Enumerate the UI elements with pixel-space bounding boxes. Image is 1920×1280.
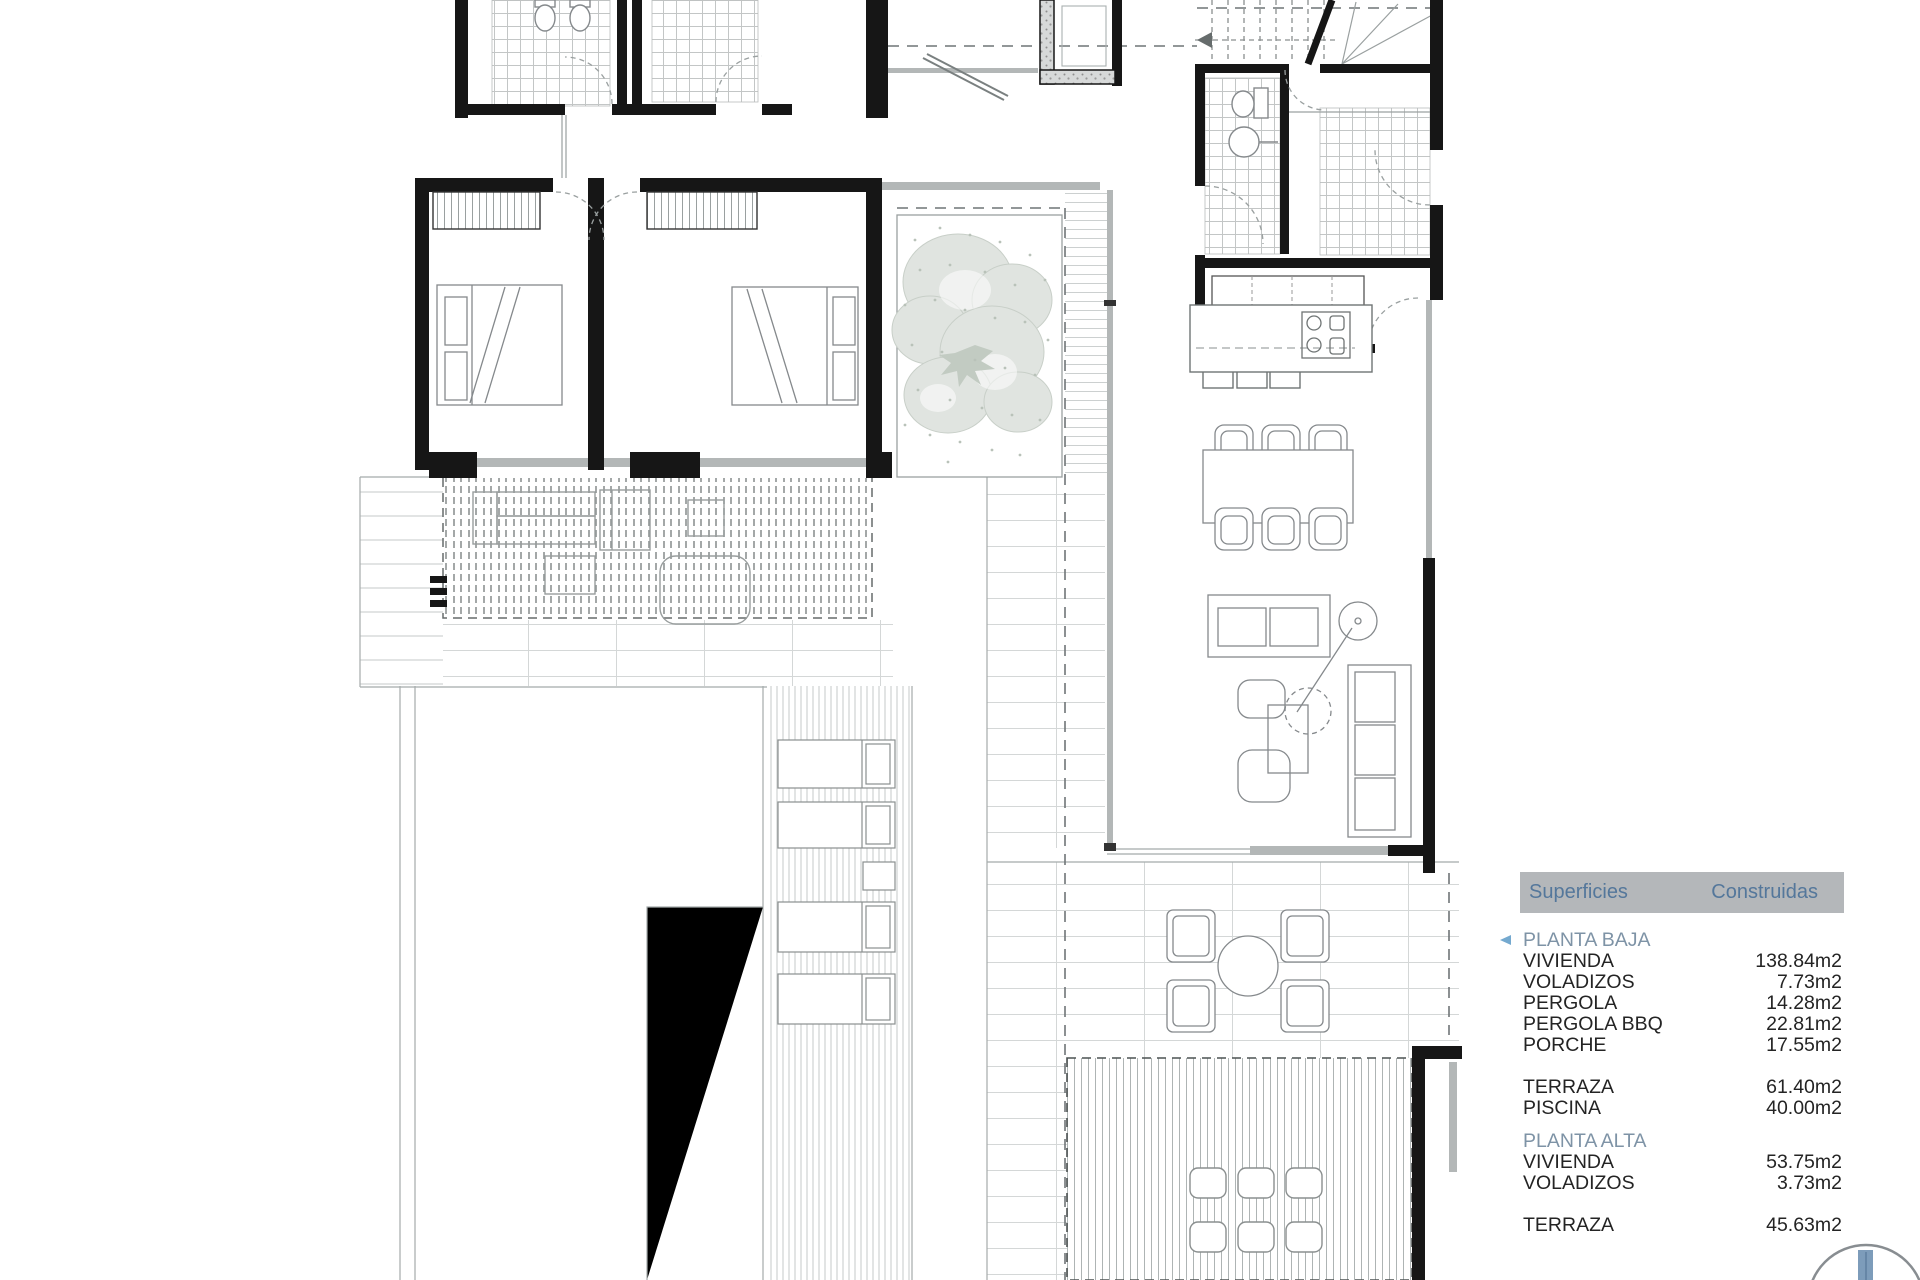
surface-table-header: Superficies Construidas [1520,872,1844,913]
east-terrace-grid [987,477,1105,848]
patio-north-glass [873,182,1100,190]
table-row: PORCHE17.55m2 [1520,1035,1844,1056]
table-row-planta-baja: PLANTA BAJA [1520,930,1844,951]
table-row: PISCINA40.00m2 [1520,1098,1844,1119]
triangle-left-icon [1500,935,1511,945]
round-table [1218,936,1278,996]
hall-partition-line [562,112,1430,178]
window-tick-marks [430,576,447,607]
bathroom-2-floor [652,0,758,102]
east-glass-wall [1426,300,1432,558]
winder-steps [1342,2,1434,64]
wardrobe [433,192,540,229]
table-row: PERGOLA14.28m2 [1520,993,1844,1014]
sofa-3-seat [1348,665,1411,837]
pergola-area [430,478,872,624]
living-south-glass [1250,846,1388,855]
table-row: VIVIENDA138.84m2 [1520,951,1844,972]
sofa-2-seat [1208,595,1330,657]
entry-stippled-wall [1040,0,1115,84]
stair-direction-arrow [1197,32,1212,48]
table-row: VIVIENDA53.75m2 [1520,1152,1844,1173]
coffee-table [1268,705,1308,773]
surface-table-rows: PLANTA BAJA VIVIENDA138.84m2 VOLADIZOS7.… [1520,930,1844,1236]
patio-garden [892,215,1062,477]
pouf [1238,680,1285,718]
table-row-spacer [1520,1056,1844,1077]
header-col-superficies: Superficies [1529,881,1628,904]
entry-door-leaf [923,54,1008,100]
compass-icon [1808,1245,1920,1280]
side-table [863,862,895,890]
pool [1067,1058,1412,1280]
entry-closet [1062,6,1106,66]
patio-deck-strip [1065,192,1107,477]
header-col-construidas: Construidas [1711,881,1818,904]
table-row: TERRAZA61.40m2 [1520,1077,1844,1098]
arc-lamp [1339,602,1377,640]
bed [437,285,562,405]
living-room [1208,595,1411,837]
wardrobe [647,192,757,229]
patio-east-glass [1107,190,1113,850]
bedroom-1 [433,192,562,405]
kitchen-floor [1320,108,1430,255]
table-row: PERGOLA BBQ22.81m2 [1520,1014,1844,1035]
bedroom1-window [477,458,630,467]
surface-table: Superficies Construidas PLANTA BAJA VIVI… [1520,872,1844,1236]
staircase [1195,0,1434,64]
table-row: VOLADIZOS7.73m2 [1520,972,1844,993]
dining-set [1203,425,1353,550]
bed [732,287,858,405]
bathroom-fixtures [535,0,1278,157]
bedroom2-window [700,458,866,467]
table-row: TERRAZA45.63m2 [1520,1215,1844,1236]
pool-side-glass [1449,1062,1457,1172]
table-row: VOLADIZOS3.73m2 [1520,1173,1844,1194]
table-row-planta-alta: PLANTA ALTA [1520,1131,1844,1152]
table-row-spacer [1520,1194,1844,1215]
south-terrace-grid [443,620,893,686]
stair-cut-line [1308,0,1332,64]
floorplan-page: Superficies Construidas PLANTA BAJA VIVI… [0,0,1920,1280]
bedroom-2 [647,192,858,405]
pouf [1238,750,1290,802]
kitchen-island [1190,305,1372,388]
